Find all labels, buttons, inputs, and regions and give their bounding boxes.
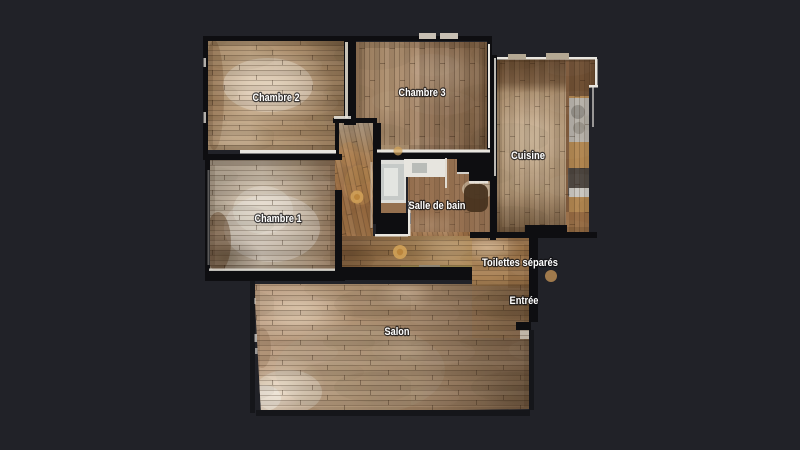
svg-text:Salle de bain: Salle de bain	[409, 200, 466, 212]
svg-text:Salon: Salon	[385, 326, 410, 338]
svg-text:Entrée: Entrée	[510, 295, 539, 307]
svg-text:Chambre 1: Chambre 1	[255, 213, 302, 225]
svg-text:Chambre 3: Chambre 3	[399, 87, 446, 99]
svg-text:Toilettes séparés: Toilettes séparés	[482, 257, 558, 269]
svg-text:Cuisine: Cuisine	[511, 150, 545, 162]
svg-text:Chambre 2: Chambre 2	[253, 92, 300, 104]
